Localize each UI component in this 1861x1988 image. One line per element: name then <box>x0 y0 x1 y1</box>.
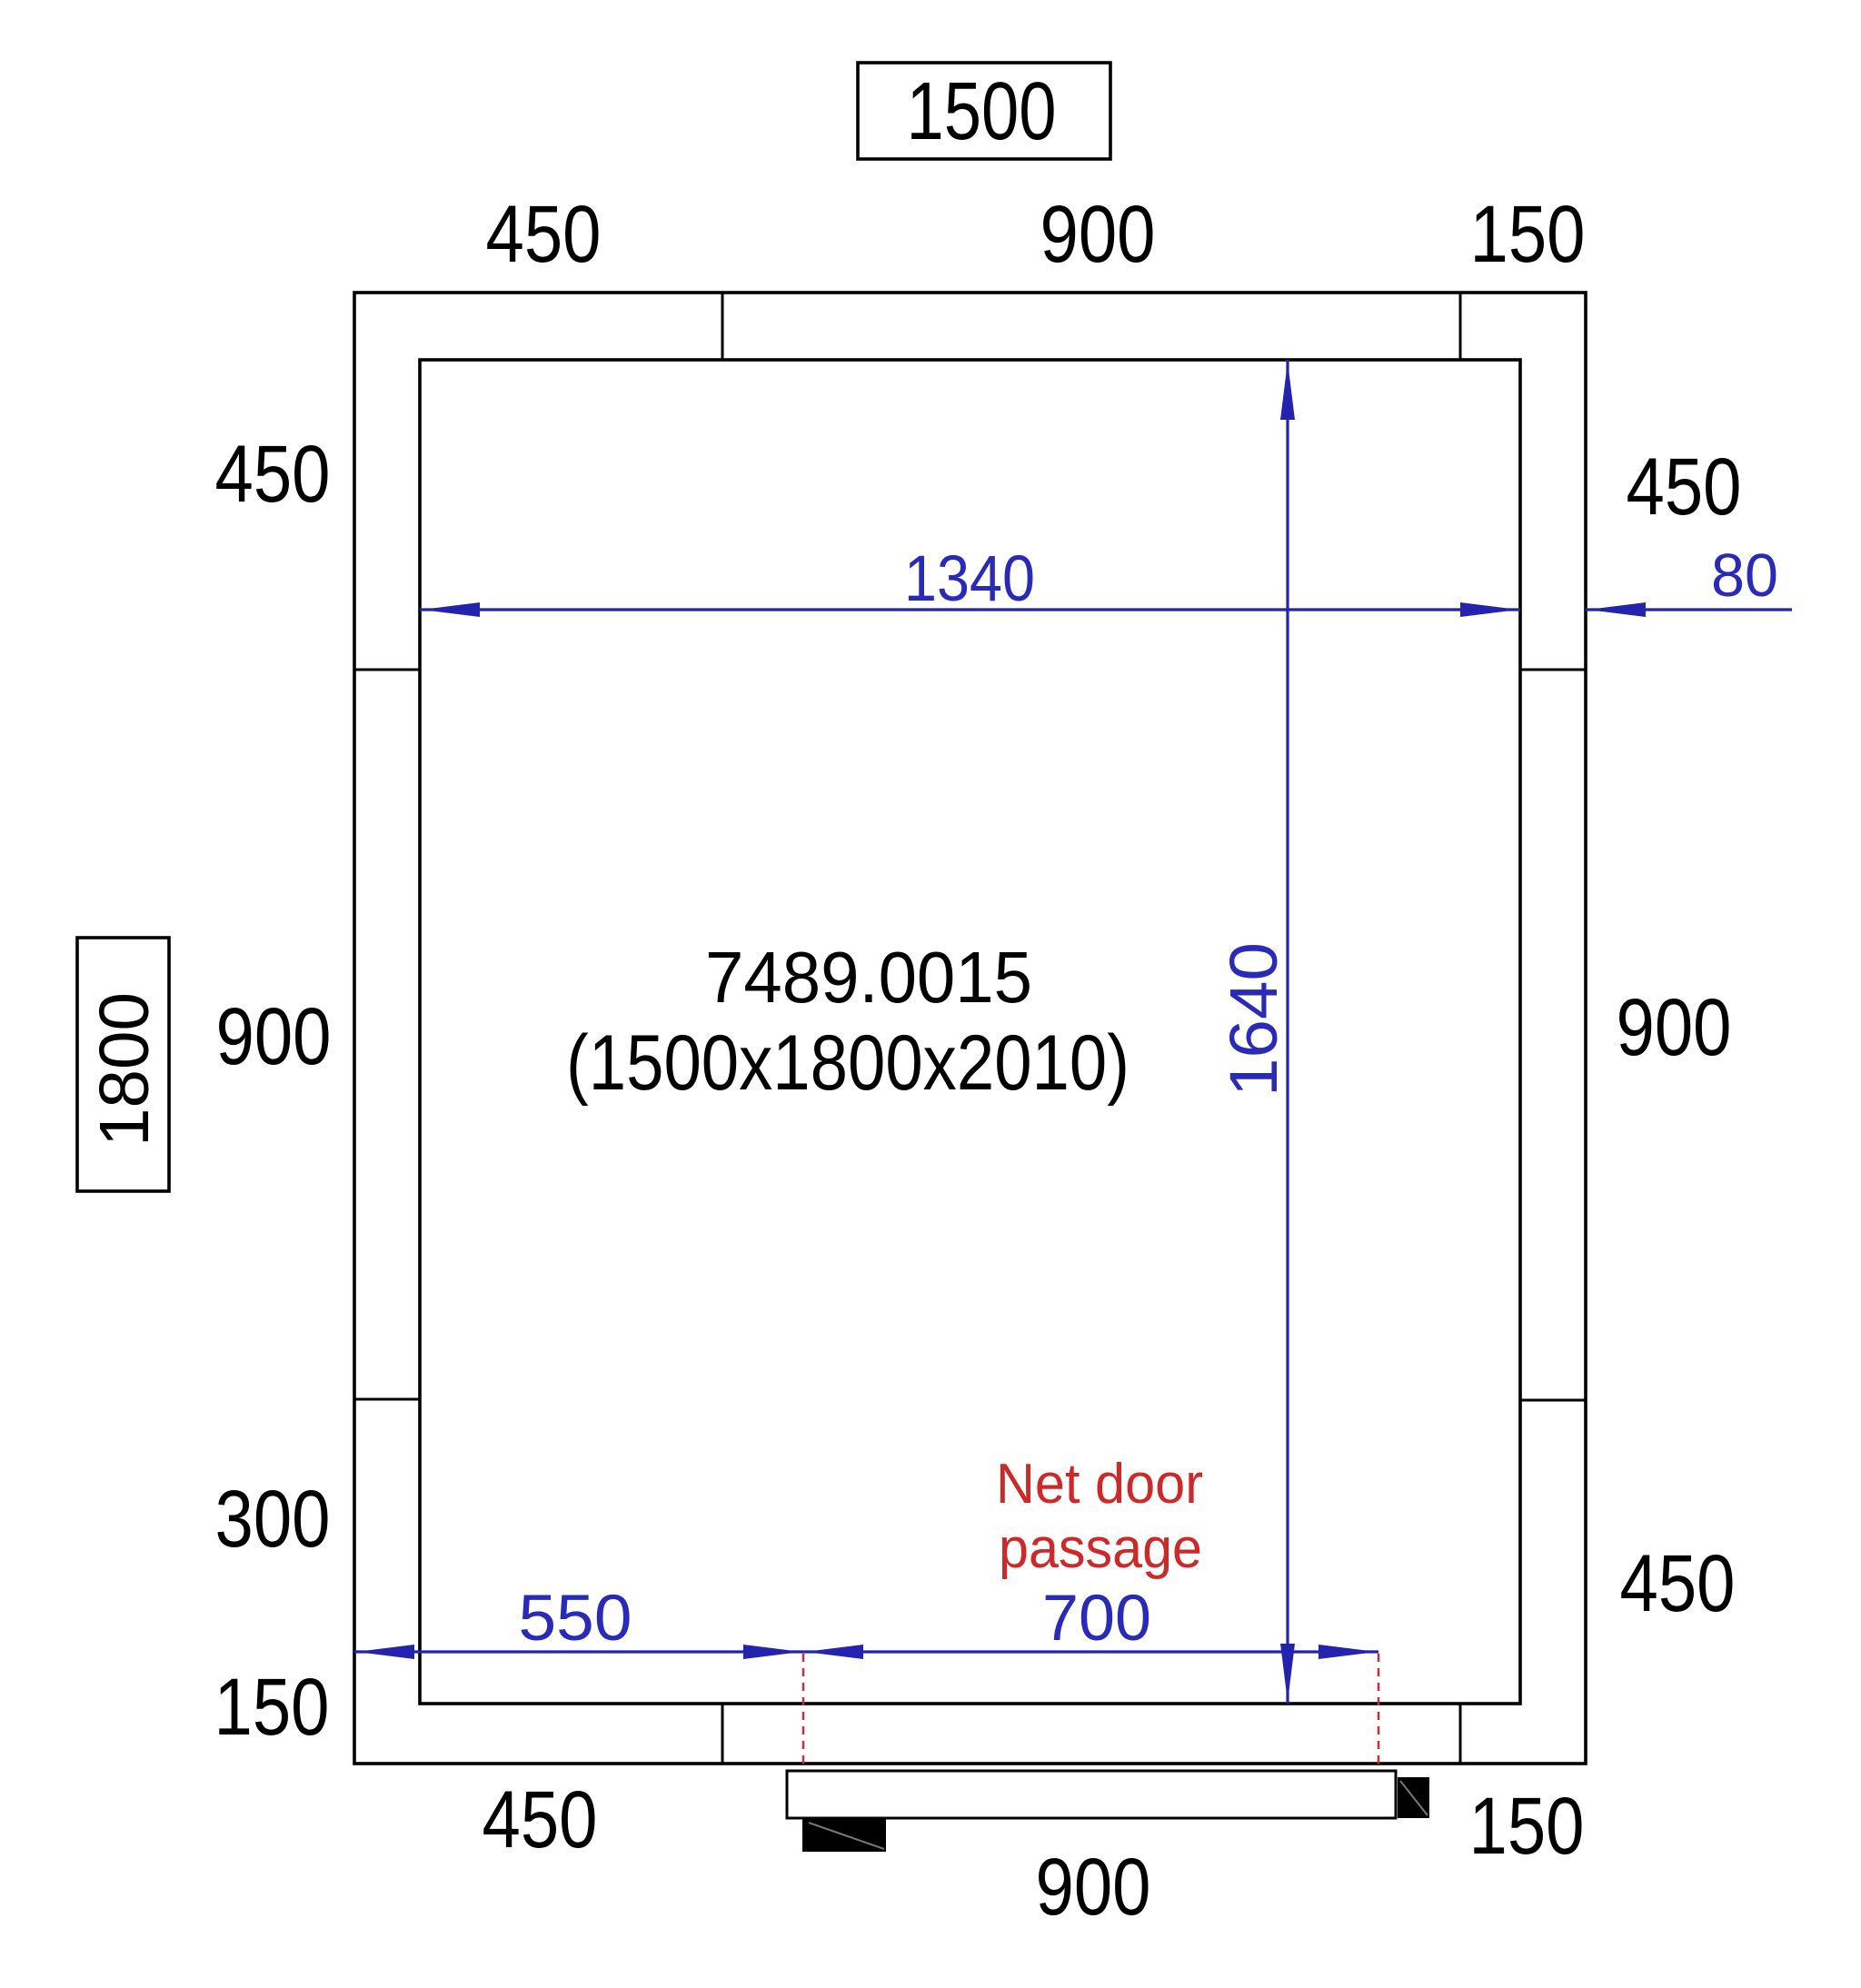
svg-text:450: 450 <box>1620 1537 1736 1628</box>
svg-text:450: 450 <box>483 1774 598 1864</box>
svg-text:900: 900 <box>1617 981 1732 1072</box>
svg-text:80: 80 <box>1711 542 1778 610</box>
svg-text:(1500x1800x2010): (1500x1800x2010) <box>566 1019 1130 1107</box>
svg-text:1800: 1800 <box>85 992 164 1147</box>
svg-text:450: 450 <box>486 188 602 279</box>
svg-text:700: 700 <box>1042 1583 1151 1655</box>
svg-text:300: 300 <box>215 1473 331 1564</box>
svg-text:Net door: Net door <box>996 1453 1203 1516</box>
svg-text:150: 150 <box>1469 1780 1585 1871</box>
svg-text:passage: passage <box>999 1517 1202 1580</box>
svg-text:450: 450 <box>1627 441 1742 532</box>
svg-text:450: 450 <box>215 428 331 519</box>
svg-text:900: 900 <box>1040 188 1156 279</box>
svg-text:900: 900 <box>216 990 332 1081</box>
svg-text:7489.0015: 7489.0015 <box>705 937 1032 1018</box>
svg-text:900: 900 <box>1036 1841 1151 1932</box>
svg-text:1340: 1340 <box>904 543 1035 615</box>
svg-text:1500: 1500 <box>907 66 1057 157</box>
svg-text:550: 550 <box>519 1583 632 1655</box>
svg-text:150: 150 <box>214 1661 330 1752</box>
svg-text:1640: 1640 <box>1216 942 1291 1097</box>
svg-text:150: 150 <box>1470 188 1586 279</box>
